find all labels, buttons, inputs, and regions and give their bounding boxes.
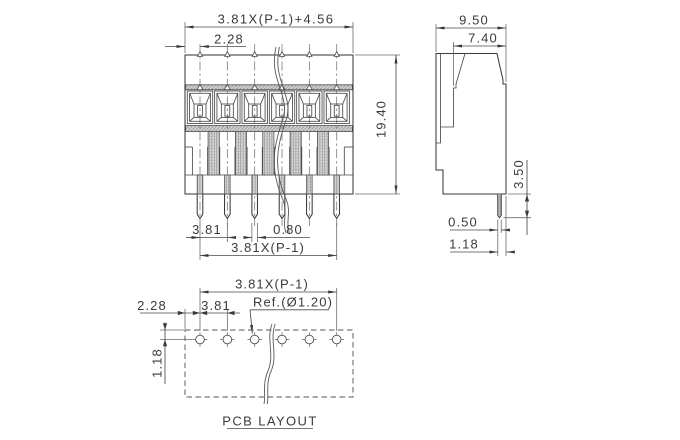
dim-arrowhead	[163, 340, 167, 347]
pcb-layout-view: 3.81X(P-1) 2.28 3.81 1.18 Ref.(Ø1.20) PC…	[137, 277, 353, 429]
contact-hatch-strip	[263, 132, 274, 176]
dim-arrowhead	[525, 194, 529, 201]
side-body	[436, 54, 506, 218]
front-poles	[185, 44, 353, 226]
port-bevel-line	[233, 93, 237, 104]
pcb-hole	[250, 335, 259, 344]
dim-arrowhead	[525, 211, 529, 218]
pcb-hole	[278, 335, 287, 344]
port-bevel-line	[261, 93, 265, 104]
pcb-hole-row	[193, 332, 344, 347]
port-bevel-line	[217, 117, 221, 121]
contact-hatch-strip	[208, 132, 219, 176]
pin-in-body	[334, 175, 340, 194]
pin-in-body	[252, 175, 258, 194]
port-bevel-line	[343, 117, 347, 121]
pcb-hole	[332, 335, 341, 344]
front-body	[185, 44, 353, 233]
entry-notch	[252, 52, 257, 57]
port-bevel-line	[343, 93, 347, 104]
contact-hatch-strip	[290, 132, 301, 176]
port-bevel-line	[299, 117, 303, 121]
port-bevel-line	[288, 117, 292, 121]
port-bevel-line	[217, 93, 221, 104]
port-bevel-line	[315, 93, 319, 104]
pcb-hole	[196, 335, 205, 344]
side-dimensions: 9.50 7.40 3.50 0.50 1.18	[436, 13, 531, 257]
pcb-hole-span-label: 3.81X(P-1)	[235, 277, 309, 292]
port-bevel-line	[299, 93, 303, 104]
port-bevel-line	[272, 93, 276, 104]
pin-in-body	[307, 175, 313, 194]
entry-notch	[197, 52, 202, 57]
front-left-margin-label: 2.28	[214, 32, 244, 47]
pcb-layout-title: PCB LAYOUT	[222, 414, 317, 429]
port-bevel-line	[244, 93, 248, 104]
pcb-hole-ref-label: Ref.(Ø1.20)	[253, 295, 333, 310]
pcb-footprint-outline	[185, 330, 353, 397]
port-bevel-line	[261, 117, 265, 121]
pcb-hole-pitch-label: 3.81	[201, 298, 231, 313]
port-bevel-line	[272, 117, 276, 121]
side-total-depth-label: 9.50	[459, 13, 489, 28]
side-upper-depth-label: 7.40	[468, 31, 498, 46]
pin-in-body	[197, 175, 203, 194]
front-pin-span-label: 3.81X(P-1)	[231, 240, 305, 255]
front-height-label: 19.40	[374, 100, 389, 138]
port-bevel-line	[206, 93, 210, 104]
port-bevel-line	[190, 93, 194, 104]
dim-arrowhead	[163, 323, 167, 330]
front-total-width-label: 3.81X(P-1)+4.56	[218, 12, 335, 27]
pin-in-body	[279, 175, 285, 194]
lower-hatch-band	[186, 126, 353, 132]
port-bevel-line	[326, 93, 330, 104]
port-bevel-line	[233, 117, 237, 121]
pcb-hole	[223, 335, 232, 344]
entry-notch	[307, 52, 312, 57]
port-bevel-line	[326, 117, 330, 121]
entry-notch	[225, 52, 230, 57]
port-bevel-line	[288, 93, 292, 104]
contact-hatch-strip	[317, 132, 328, 176]
pin-in-body	[225, 175, 231, 194]
port-bevel-line	[315, 117, 319, 121]
front-pin-width-label: 0.80	[273, 222, 303, 237]
upper-hatch-band	[186, 85, 353, 90]
side-pin-offset-label: 1.18	[449, 237, 479, 252]
front-pin-pitch-label: 3.81	[192, 222, 222, 237]
entry-notch	[279, 52, 284, 57]
dim-arrowhead	[178, 311, 185, 315]
port-bevel-line	[190, 117, 194, 121]
pcb-hole	[305, 335, 314, 344]
port-bevel-line	[206, 117, 210, 121]
port-bevel-line	[244, 117, 248, 121]
side-view: 9.50 7.40 3.50 0.50 1.18	[436, 13, 531, 257]
pcb-left-margin-label: 2.28	[137, 298, 167, 313]
side-pin-thickness-label: 0.50	[448, 215, 478, 230]
entry-notch	[334, 52, 339, 57]
side-body-outline	[436, 54, 506, 195]
dim-arrowhead	[193, 311, 200, 315]
contact-hatch-strip	[235, 132, 246, 176]
pcb-row-offset-label: 1.18	[150, 348, 165, 378]
front-view: 3.81X(P-1)+4.56 2.28 19.40 3.81 0.80 3.8…	[165, 12, 400, 261]
terminal-block-technical-drawing: 3.81X(P-1)+4.56 2.28 19.40 3.81 0.80 3.8…	[0, 0, 680, 440]
break-line	[267, 324, 275, 404]
side-pin-length-label: 3.50	[511, 159, 526, 189]
